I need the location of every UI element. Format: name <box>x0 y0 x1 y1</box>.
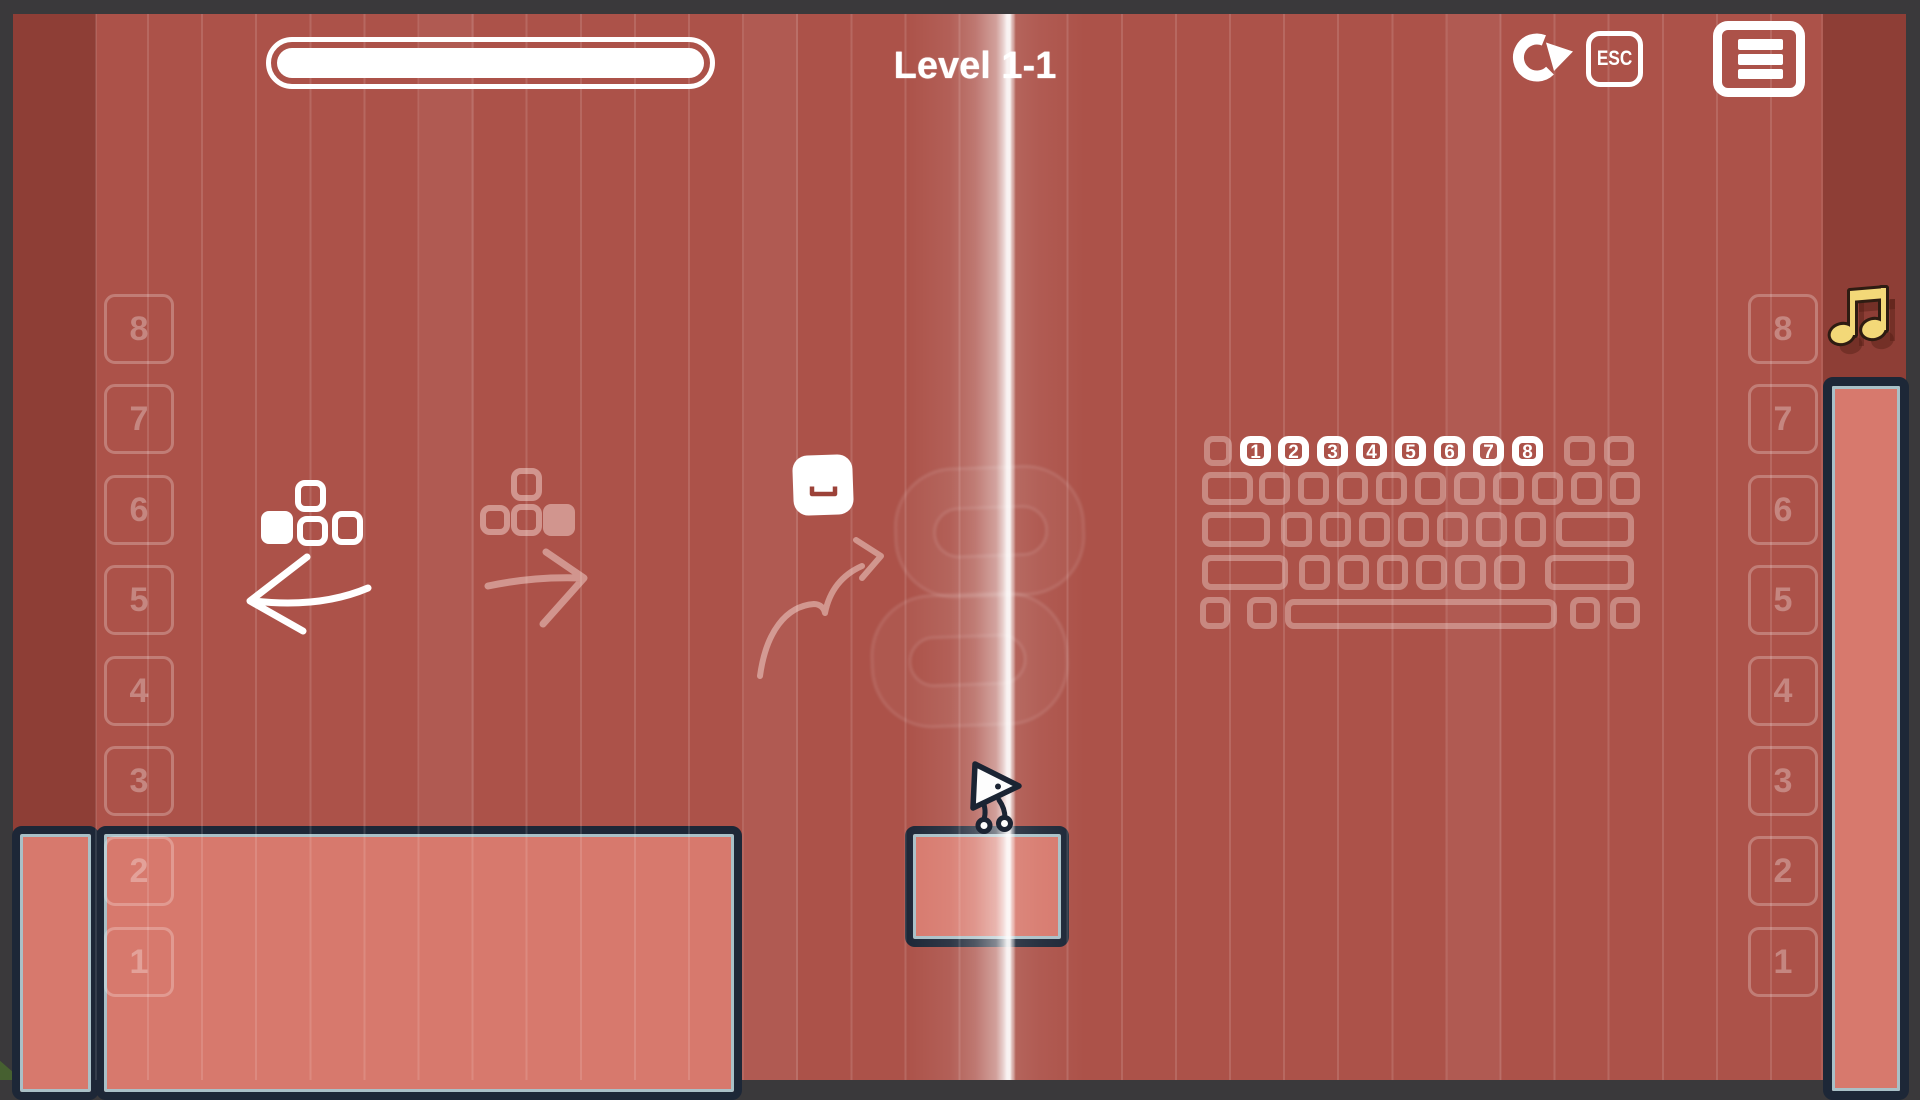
svg-text:4: 4 <box>1366 442 1377 463</box>
svg-text:8: 8 <box>1522 442 1533 463</box>
svg-text:2: 2 <box>1288 442 1299 463</box>
svg-text:3: 3 <box>1327 442 1338 463</box>
svg-text:6: 6 <box>1444 442 1455 463</box>
svg-text:7: 7 <box>1483 442 1494 463</box>
svg-text:1: 1 <box>1250 442 1261 463</box>
svg-text:5: 5 <box>1405 442 1416 463</box>
